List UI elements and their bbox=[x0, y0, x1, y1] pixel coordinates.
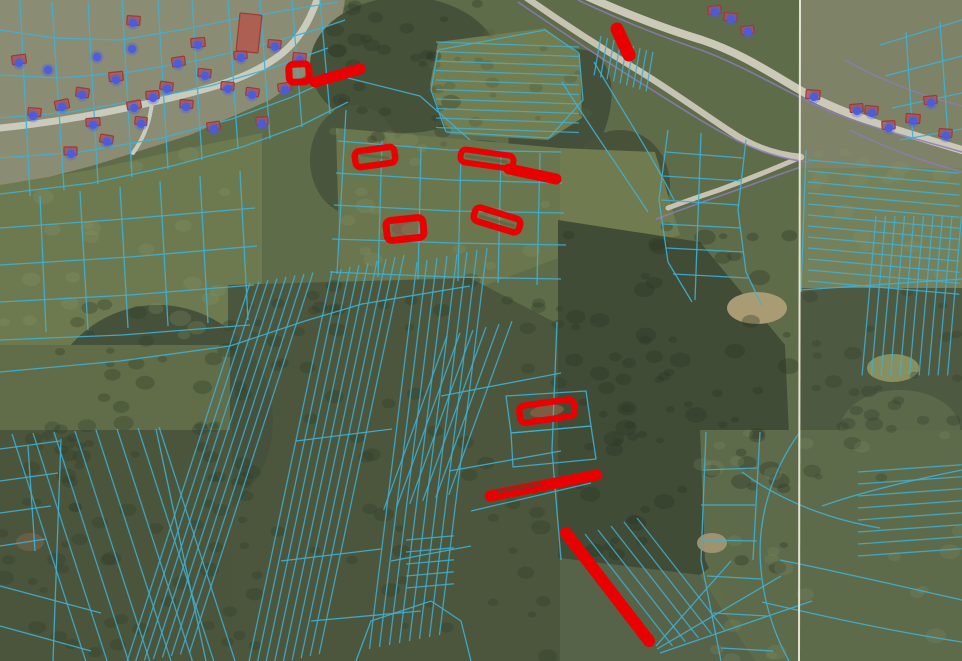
map-sheet-line bbox=[799, 0, 800, 661]
map-canvas[interactable] bbox=[0, 0, 962, 661]
map-viewport[interactable] bbox=[0, 0, 962, 661]
